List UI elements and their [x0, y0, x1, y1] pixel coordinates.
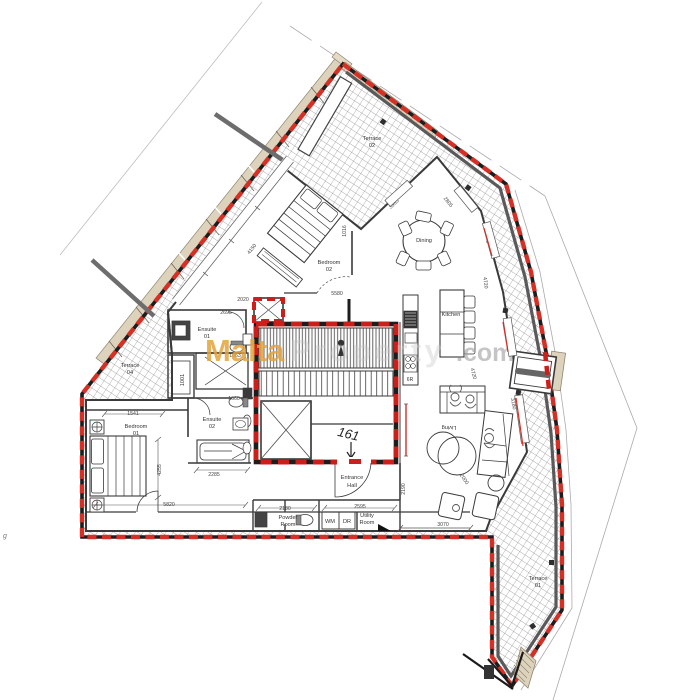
svg-text:2285: 2285 [208, 472, 220, 478]
svg-text:02: 02 [369, 143, 375, 149]
svg-text:6R: 6R [407, 377, 414, 383]
svg-text:Terrace: Terrace [121, 363, 140, 369]
svg-text:WM: WM [325, 519, 335, 525]
svg-text:2595: 2595 [354, 504, 366, 510]
svg-text:4255: 4255 [157, 464, 163, 476]
svg-text:Entrance: Entrance [341, 475, 363, 481]
svg-text:2190: 2190 [401, 483, 407, 495]
svg-text:02: 02 [209, 424, 215, 430]
svg-text:5820: 5820 [163, 502, 175, 508]
svg-text:Bedroom: Bedroom [125, 424, 148, 430]
svg-text:Powder: Powder [279, 515, 298, 521]
svg-text:Malta: Malta [205, 333, 285, 368]
svg-text:DR: DR [343, 519, 351, 525]
svg-text:2180: 2180 [279, 506, 291, 512]
svg-text:1660: 1660 [228, 396, 240, 402]
svg-text:.com: .com [456, 339, 514, 367]
svg-text:Room: Room [281, 522, 296, 528]
svg-text:2695: 2695 [220, 310, 232, 316]
svg-text:5580: 5580 [331, 291, 343, 297]
svg-text:1001: 1001 [180, 374, 186, 386]
svg-text:01: 01 [133, 431, 139, 437]
svg-text:Property: Property [290, 333, 445, 368]
svg-text:Terrace: Terrace [529, 576, 548, 582]
svg-text:2020: 2020 [237, 297, 249, 303]
svg-text:Terrace: Terrace [363, 136, 382, 142]
svg-text:Living: Living [442, 424, 457, 430]
svg-text:Utility: Utility [360, 513, 374, 519]
svg-text:Room: Room [360, 520, 375, 526]
svg-text:Hall: Hall [347, 483, 357, 489]
svg-text:04: 04 [127, 370, 133, 376]
svg-text:1541: 1541 [127, 411, 139, 417]
svg-text:3070: 3070 [437, 522, 449, 528]
svg-text:1016: 1016 [342, 225, 348, 237]
svg-text:Kitchen: Kitchen [442, 312, 461, 318]
svg-text:02: 02 [326, 267, 332, 273]
svg-text:Dining: Dining [416, 238, 432, 244]
svg-text:Ensuite: Ensuite [203, 417, 222, 423]
svg-text:g: g [3, 533, 7, 540]
svg-text:01: 01 [535, 583, 541, 589]
svg-text:Bedroom: Bedroom [318, 260, 341, 266]
